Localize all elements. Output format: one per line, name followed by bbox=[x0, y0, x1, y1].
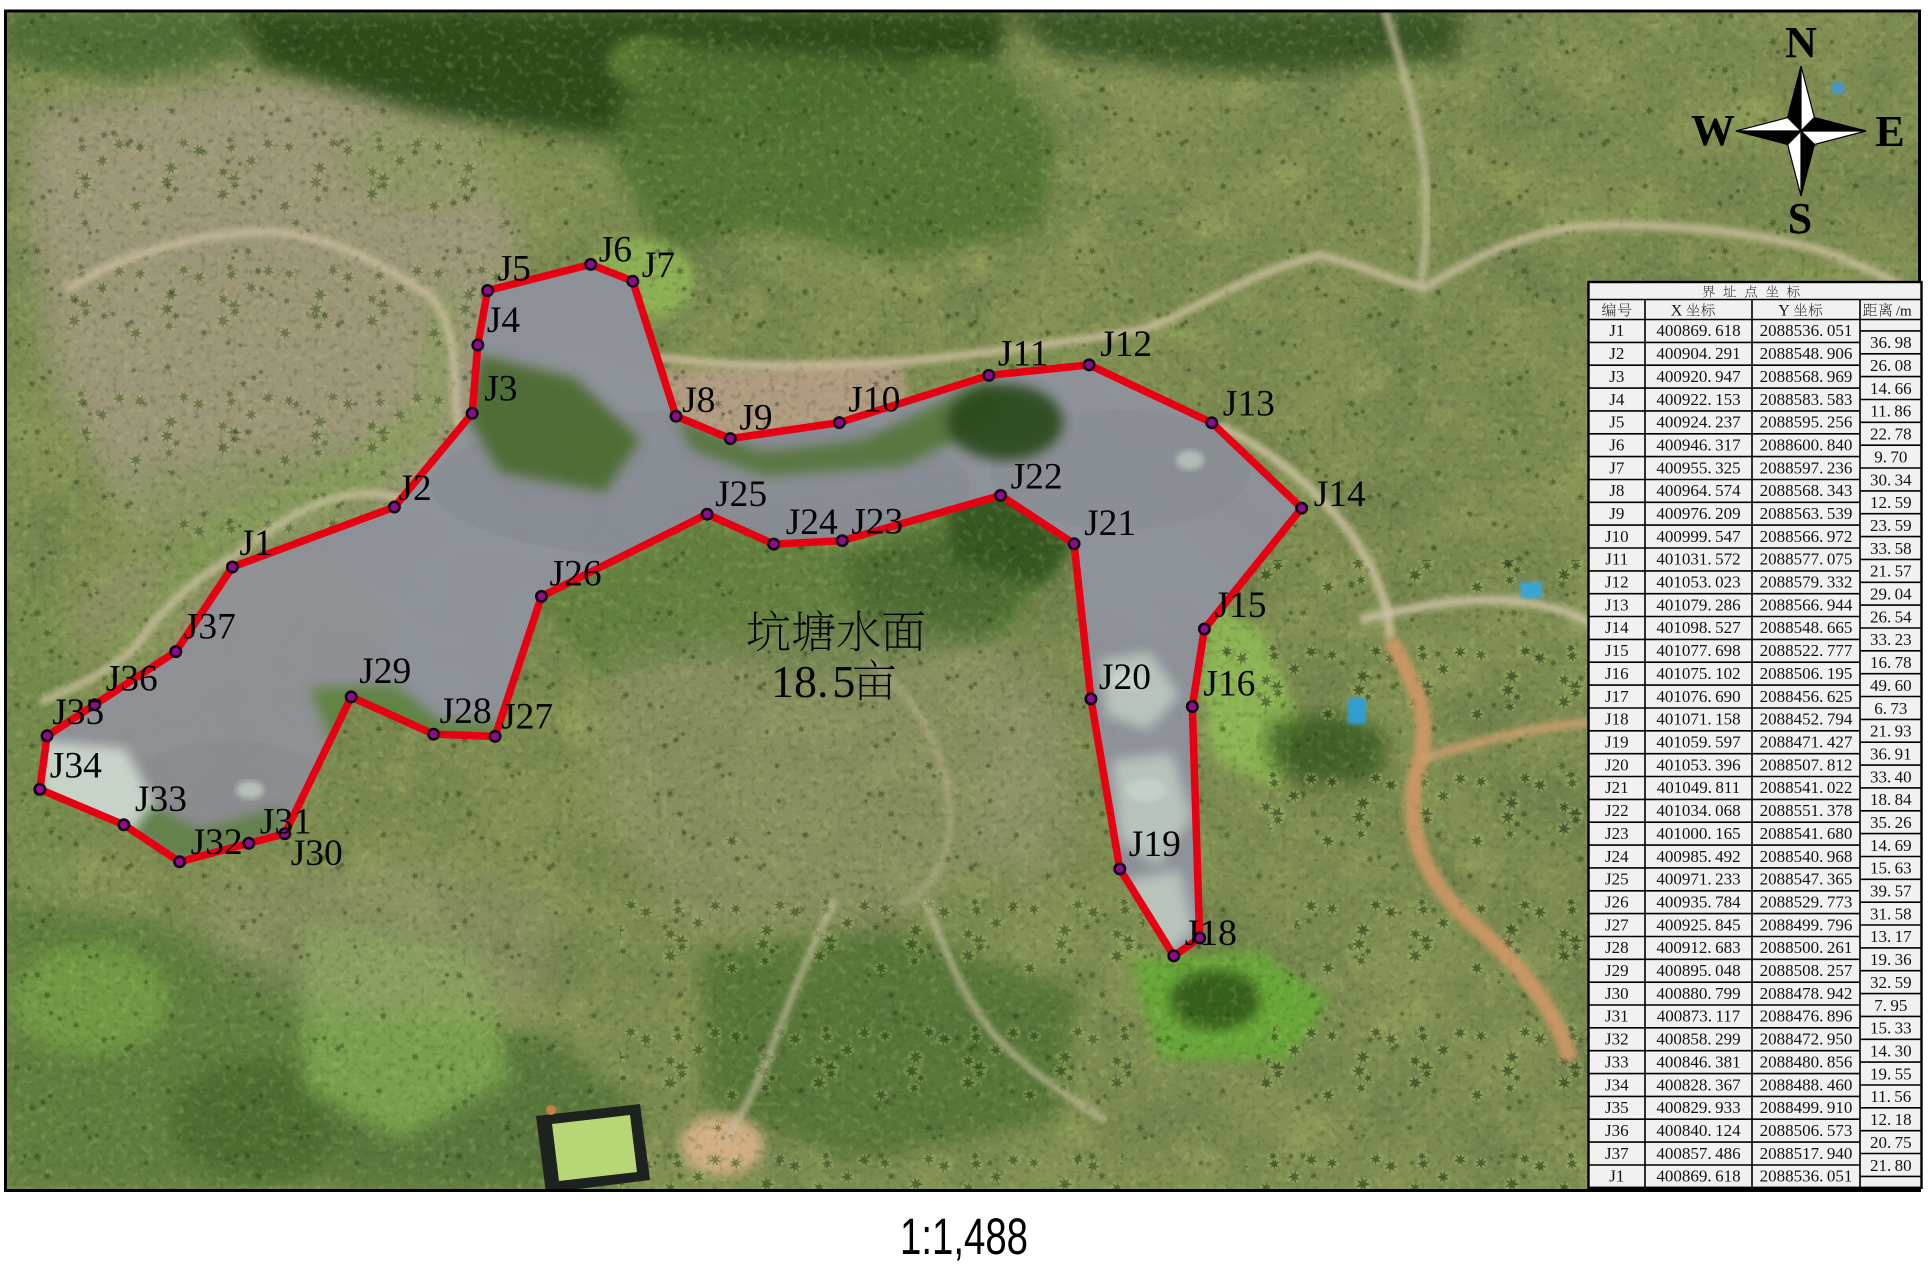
svg-text:14. 69: 14. 69 bbox=[1870, 836, 1912, 855]
svg-text:400904. 291: 400904. 291 bbox=[1656, 344, 1740, 363]
svg-text:2088500. 261: 2088500. 261 bbox=[1760, 938, 1853, 957]
svg-text:400880. 799: 400880. 799 bbox=[1656, 984, 1740, 1003]
svg-text:400840. 124: 400840. 124 bbox=[1656, 1121, 1741, 1140]
svg-text:22. 78: 22. 78 bbox=[1870, 425, 1912, 444]
svg-text:/m: /m bbox=[1896, 304, 1912, 320]
svg-text:400971. 233: 400971. 233 bbox=[1656, 870, 1740, 889]
svg-text:2088478. 942: 2088478. 942 bbox=[1760, 984, 1853, 1003]
svg-text:400873. 117: 400873. 117 bbox=[1657, 1007, 1741, 1026]
svg-text:J33: J33 bbox=[135, 779, 187, 820]
svg-text:J11: J11 bbox=[1605, 550, 1628, 569]
svg-text:J29: J29 bbox=[1605, 961, 1629, 980]
svg-text:J10: J10 bbox=[848, 380, 900, 421]
svg-text:2088472. 950: 2088472. 950 bbox=[1760, 1030, 1853, 1049]
svg-text:J8: J8 bbox=[682, 380, 715, 421]
svg-text:20. 75: 20. 75 bbox=[1870, 1133, 1912, 1152]
svg-text:401079. 286: 401079. 286 bbox=[1656, 595, 1740, 614]
svg-text:J30: J30 bbox=[1605, 984, 1629, 1003]
svg-text:401071. 158: 401071. 158 bbox=[1656, 710, 1740, 729]
svg-text:400925. 845: 400925. 845 bbox=[1656, 915, 1740, 934]
svg-text:J4: J4 bbox=[487, 300, 521, 341]
svg-text:18. 84: 18. 84 bbox=[1870, 790, 1912, 809]
svg-text:J19: J19 bbox=[1129, 824, 1181, 865]
svg-text:401031. 572: 401031. 572 bbox=[1656, 550, 1740, 569]
svg-text:2088595. 256: 2088595. 256 bbox=[1760, 413, 1853, 432]
svg-text:2088548. 906: 2088548. 906 bbox=[1760, 344, 1853, 363]
svg-text:2088456. 625: 2088456. 625 bbox=[1760, 687, 1853, 706]
svg-text:400999. 547: 400999. 547 bbox=[1656, 527, 1741, 546]
svg-text:J34: J34 bbox=[50, 745, 102, 786]
svg-text:16. 78: 16. 78 bbox=[1870, 653, 1912, 672]
svg-text:J2: J2 bbox=[1609, 344, 1624, 363]
svg-text:401053. 396: 401053. 396 bbox=[1656, 755, 1740, 774]
svg-text:J18: J18 bbox=[1605, 710, 1629, 729]
svg-text:J14: J14 bbox=[1605, 618, 1629, 637]
svg-text:401059. 597: 401059. 597 bbox=[1656, 733, 1741, 752]
svg-text:J29: J29 bbox=[359, 651, 411, 692]
svg-text:J1: J1 bbox=[1609, 1167, 1624, 1186]
svg-text:19. 55: 19. 55 bbox=[1870, 1064, 1912, 1083]
svg-text:J37: J37 bbox=[1605, 1144, 1629, 1163]
svg-text:J16: J16 bbox=[1605, 664, 1629, 683]
svg-text:2088540. 968: 2088540. 968 bbox=[1760, 847, 1853, 866]
svg-text:J22: J22 bbox=[1605, 801, 1629, 820]
svg-text:11. 86: 11. 86 bbox=[1870, 402, 1911, 421]
svg-text:21. 57: 21. 57 bbox=[1870, 562, 1912, 581]
svg-text:J33: J33 bbox=[1605, 1052, 1629, 1071]
svg-text:2088452. 794: 2088452. 794 bbox=[1760, 710, 1853, 729]
svg-text:400964. 574: 400964. 574 bbox=[1656, 481, 1741, 500]
svg-text:2088488. 460: 2088488. 460 bbox=[1760, 1075, 1853, 1094]
svg-text:7. 95: 7. 95 bbox=[1874, 996, 1907, 1015]
svg-text:2088522. 777: 2088522. 777 bbox=[1760, 641, 1853, 660]
svg-text:12. 18: 12. 18 bbox=[1870, 1110, 1912, 1129]
svg-text:400935. 784: 400935. 784 bbox=[1656, 893, 1741, 912]
svg-text:N: N bbox=[1785, 18, 1817, 67]
svg-text:400869. 618: 400869. 618 bbox=[1656, 321, 1740, 340]
svg-text:J4: J4 bbox=[1609, 390, 1625, 409]
svg-text:400922. 153: 400922. 153 bbox=[1656, 390, 1740, 409]
svg-text:J11: J11 bbox=[998, 333, 1049, 374]
svg-text:33. 40: 33. 40 bbox=[1870, 767, 1912, 786]
svg-text:J27: J27 bbox=[1605, 915, 1629, 934]
svg-text:2088517. 940: 2088517. 940 bbox=[1760, 1144, 1853, 1163]
svg-text:J26: J26 bbox=[1605, 893, 1629, 912]
svg-text:J6: J6 bbox=[1609, 435, 1624, 454]
svg-text:2088547. 365: 2088547. 365 bbox=[1760, 870, 1853, 889]
svg-text:J24: J24 bbox=[786, 502, 838, 543]
svg-text:1:1,488: 1:1,488 bbox=[900, 1208, 1028, 1265]
svg-text:J19: J19 bbox=[1605, 733, 1629, 752]
svg-text:J25: J25 bbox=[1605, 870, 1629, 889]
svg-text:49. 60: 49. 60 bbox=[1870, 676, 1912, 695]
svg-text:2088583. 583: 2088583. 583 bbox=[1760, 390, 1853, 409]
svg-text:400976. 209: 400976. 209 bbox=[1656, 504, 1740, 523]
svg-text:J18: J18 bbox=[1185, 913, 1237, 954]
svg-text:23. 59: 23. 59 bbox=[1870, 516, 1912, 535]
svg-text:2088480. 856: 2088480. 856 bbox=[1760, 1052, 1853, 1071]
svg-text:2088541. 680: 2088541. 680 bbox=[1760, 824, 1853, 843]
svg-text:J20: J20 bbox=[1099, 657, 1151, 698]
svg-text:14. 66: 14. 66 bbox=[1870, 379, 1912, 398]
svg-text:15. 33: 15. 33 bbox=[1870, 1019, 1912, 1038]
svg-text:400912. 683: 400912. 683 bbox=[1656, 938, 1740, 957]
svg-text:J7: J7 bbox=[642, 245, 675, 286]
svg-text:J1: J1 bbox=[1609, 321, 1624, 340]
svg-text:2088536. 051: 2088536. 051 bbox=[1760, 1167, 1853, 1186]
svg-text:400955. 325: 400955. 325 bbox=[1656, 458, 1740, 477]
svg-text:J21: J21 bbox=[1605, 778, 1629, 797]
svg-text:2088499. 910: 2088499. 910 bbox=[1760, 1098, 1853, 1117]
svg-text:400895. 048: 400895. 048 bbox=[1656, 961, 1740, 980]
svg-text:400920. 947: 400920. 947 bbox=[1656, 367, 1741, 386]
svg-text:J3: J3 bbox=[484, 368, 517, 409]
svg-text:2088507. 812: 2088507. 812 bbox=[1760, 755, 1853, 774]
svg-text:J31: J31 bbox=[260, 801, 312, 842]
svg-text:2088568. 343: 2088568. 343 bbox=[1760, 481, 1853, 500]
svg-text:2088600. 840: 2088600. 840 bbox=[1760, 435, 1853, 454]
svg-text:33. 58: 33. 58 bbox=[1870, 539, 1912, 558]
svg-text:J15: J15 bbox=[1605, 641, 1629, 660]
svg-text:36. 91: 36. 91 bbox=[1870, 745, 1912, 764]
svg-text:J6: J6 bbox=[599, 229, 632, 270]
svg-text:J5: J5 bbox=[498, 249, 531, 290]
svg-text:15. 63: 15. 63 bbox=[1870, 859, 1912, 878]
svg-text:J26: J26 bbox=[550, 553, 602, 594]
svg-text:35. 26: 35. 26 bbox=[1870, 813, 1912, 832]
svg-text:9. 70: 9. 70 bbox=[1874, 447, 1907, 466]
svg-text:2088508. 257: 2088508. 257 bbox=[1760, 961, 1853, 980]
svg-text:J27: J27 bbox=[501, 696, 553, 737]
svg-text:J28: J28 bbox=[440, 691, 492, 732]
svg-text:401053. 023: 401053. 023 bbox=[1656, 573, 1740, 592]
svg-text:21. 93: 21. 93 bbox=[1870, 722, 1912, 741]
svg-text:J16: J16 bbox=[1203, 664, 1255, 705]
svg-text:J21: J21 bbox=[1084, 503, 1136, 544]
svg-text:J25: J25 bbox=[715, 474, 767, 515]
svg-text:400946. 317: 400946. 317 bbox=[1656, 435, 1741, 454]
svg-text:J32: J32 bbox=[1605, 1030, 1629, 1049]
svg-text:J24: J24 bbox=[1605, 847, 1629, 866]
svg-text:400829. 933: 400829. 933 bbox=[1656, 1098, 1740, 1117]
svg-text:J17: J17 bbox=[1605, 687, 1629, 706]
svg-text:6. 73: 6. 73 bbox=[1874, 699, 1907, 718]
svg-text:19. 36: 19. 36 bbox=[1870, 950, 1912, 969]
svg-text:26. 08: 26. 08 bbox=[1870, 356, 1912, 375]
svg-text:2088551. 378: 2088551. 378 bbox=[1760, 801, 1853, 820]
svg-text:400858. 299: 400858. 299 bbox=[1656, 1030, 1740, 1049]
svg-text:29. 04: 29. 04 bbox=[1870, 585, 1912, 604]
svg-text:39. 57: 39. 57 bbox=[1870, 882, 1912, 901]
svg-text:2088566. 972: 2088566. 972 bbox=[1760, 527, 1853, 546]
svg-text:401075. 102: 401075. 102 bbox=[1656, 664, 1740, 683]
svg-text:J15: J15 bbox=[1214, 585, 1266, 626]
svg-text:13. 17: 13. 17 bbox=[1870, 927, 1912, 946]
svg-text:J1: J1 bbox=[239, 523, 272, 564]
svg-text:32. 59: 32. 59 bbox=[1870, 973, 1912, 992]
svg-text:30. 34: 30. 34 bbox=[1870, 470, 1912, 489]
svg-text:2088568. 969: 2088568. 969 bbox=[1760, 367, 1853, 386]
svg-text:400924. 237: 400924. 237 bbox=[1656, 413, 1741, 432]
svg-text:W: W bbox=[1691, 106, 1735, 155]
svg-text:J9: J9 bbox=[1609, 504, 1624, 523]
svg-text:S: S bbox=[1788, 194, 1812, 243]
svg-text:J31: J31 bbox=[1605, 1007, 1629, 1026]
svg-text:401076. 690: 401076. 690 bbox=[1656, 687, 1740, 706]
svg-text:E: E bbox=[1875, 107, 1904, 156]
svg-text:21. 80: 21. 80 bbox=[1870, 1156, 1912, 1175]
svg-text:J36: J36 bbox=[1605, 1121, 1629, 1140]
svg-text:18. 5: 18. 5 bbox=[771, 656, 855, 707]
svg-text:J14: J14 bbox=[1314, 474, 1366, 515]
svg-text:J23: J23 bbox=[1605, 824, 1629, 843]
svg-text:Y: Y bbox=[1778, 303, 1790, 320]
svg-text:400869. 618: 400869. 618 bbox=[1656, 1167, 1740, 1186]
svg-text:J8: J8 bbox=[1609, 481, 1624, 500]
svg-text:J34: J34 bbox=[1605, 1075, 1629, 1094]
svg-text:401000. 165: 401000. 165 bbox=[1656, 824, 1740, 843]
svg-text:2088506. 573: 2088506. 573 bbox=[1760, 1121, 1853, 1140]
svg-text:12. 59: 12. 59 bbox=[1870, 493, 1912, 512]
svg-text:J23: J23 bbox=[851, 502, 903, 543]
svg-text:401077. 698: 401077. 698 bbox=[1656, 641, 1740, 660]
svg-text:J10: J10 bbox=[1605, 527, 1629, 546]
svg-text:2088577. 075: 2088577. 075 bbox=[1760, 550, 1853, 569]
svg-text:J13: J13 bbox=[1223, 384, 1275, 425]
svg-text:2088536. 051: 2088536. 051 bbox=[1760, 321, 1853, 340]
svg-text:33. 23: 33. 23 bbox=[1870, 630, 1912, 649]
svg-text:J28: J28 bbox=[1605, 938, 1629, 957]
svg-text:400857. 486: 400857. 486 bbox=[1656, 1144, 1740, 1163]
svg-text:J12: J12 bbox=[1605, 573, 1629, 592]
svg-text:J2: J2 bbox=[398, 468, 431, 509]
svg-text:J37: J37 bbox=[184, 607, 236, 648]
svg-text:2088566. 944: 2088566. 944 bbox=[1760, 595, 1853, 614]
svg-text:400828. 367: 400828. 367 bbox=[1656, 1075, 1741, 1094]
svg-text:J3: J3 bbox=[1609, 367, 1624, 386]
svg-text:2088529. 773: 2088529. 773 bbox=[1760, 893, 1853, 912]
svg-text:400846. 381: 400846. 381 bbox=[1656, 1052, 1740, 1071]
svg-text:401049. 811: 401049. 811 bbox=[1657, 778, 1741, 797]
svg-text:X: X bbox=[1671, 303, 1683, 320]
svg-text:26. 54: 26. 54 bbox=[1870, 607, 1912, 626]
svg-text:J13: J13 bbox=[1605, 595, 1629, 614]
svg-text:J35: J35 bbox=[52, 692, 104, 733]
svg-text:2088476. 896: 2088476. 896 bbox=[1760, 1007, 1853, 1026]
svg-text:2088563. 539: 2088563. 539 bbox=[1760, 504, 1853, 523]
svg-text:401098. 527: 401098. 527 bbox=[1656, 618, 1741, 637]
svg-text:2088541. 022: 2088541. 022 bbox=[1760, 778, 1853, 797]
svg-text:J36: J36 bbox=[106, 659, 158, 700]
svg-text:2088579. 332: 2088579. 332 bbox=[1760, 573, 1853, 592]
svg-text:J5: J5 bbox=[1609, 413, 1624, 432]
svg-text:2088506. 195: 2088506. 195 bbox=[1760, 664, 1853, 683]
svg-text:J35: J35 bbox=[1605, 1098, 1629, 1117]
svg-text:31. 58: 31. 58 bbox=[1870, 904, 1912, 923]
svg-text:J9: J9 bbox=[739, 398, 772, 439]
svg-text:400985. 492: 400985. 492 bbox=[1656, 847, 1740, 866]
svg-text:J12: J12 bbox=[1100, 324, 1152, 365]
svg-text:36. 98: 36. 98 bbox=[1870, 333, 1912, 352]
svg-text:J32: J32 bbox=[191, 822, 243, 863]
svg-text:11. 56: 11. 56 bbox=[1870, 1087, 1911, 1106]
svg-text:401034. 068: 401034. 068 bbox=[1656, 801, 1740, 820]
svg-text:2088471. 427: 2088471. 427 bbox=[1760, 733, 1853, 752]
svg-text:J7: J7 bbox=[1609, 458, 1625, 477]
svg-text:2088597. 236: 2088597. 236 bbox=[1760, 458, 1853, 477]
svg-text:14. 30: 14. 30 bbox=[1870, 1042, 1912, 1061]
svg-text:2088499. 796: 2088499. 796 bbox=[1760, 915, 1853, 934]
svg-text:J20: J20 bbox=[1605, 755, 1629, 774]
svg-text:2088548. 665: 2088548. 665 bbox=[1760, 618, 1853, 637]
svg-text:J22: J22 bbox=[1011, 456, 1063, 497]
